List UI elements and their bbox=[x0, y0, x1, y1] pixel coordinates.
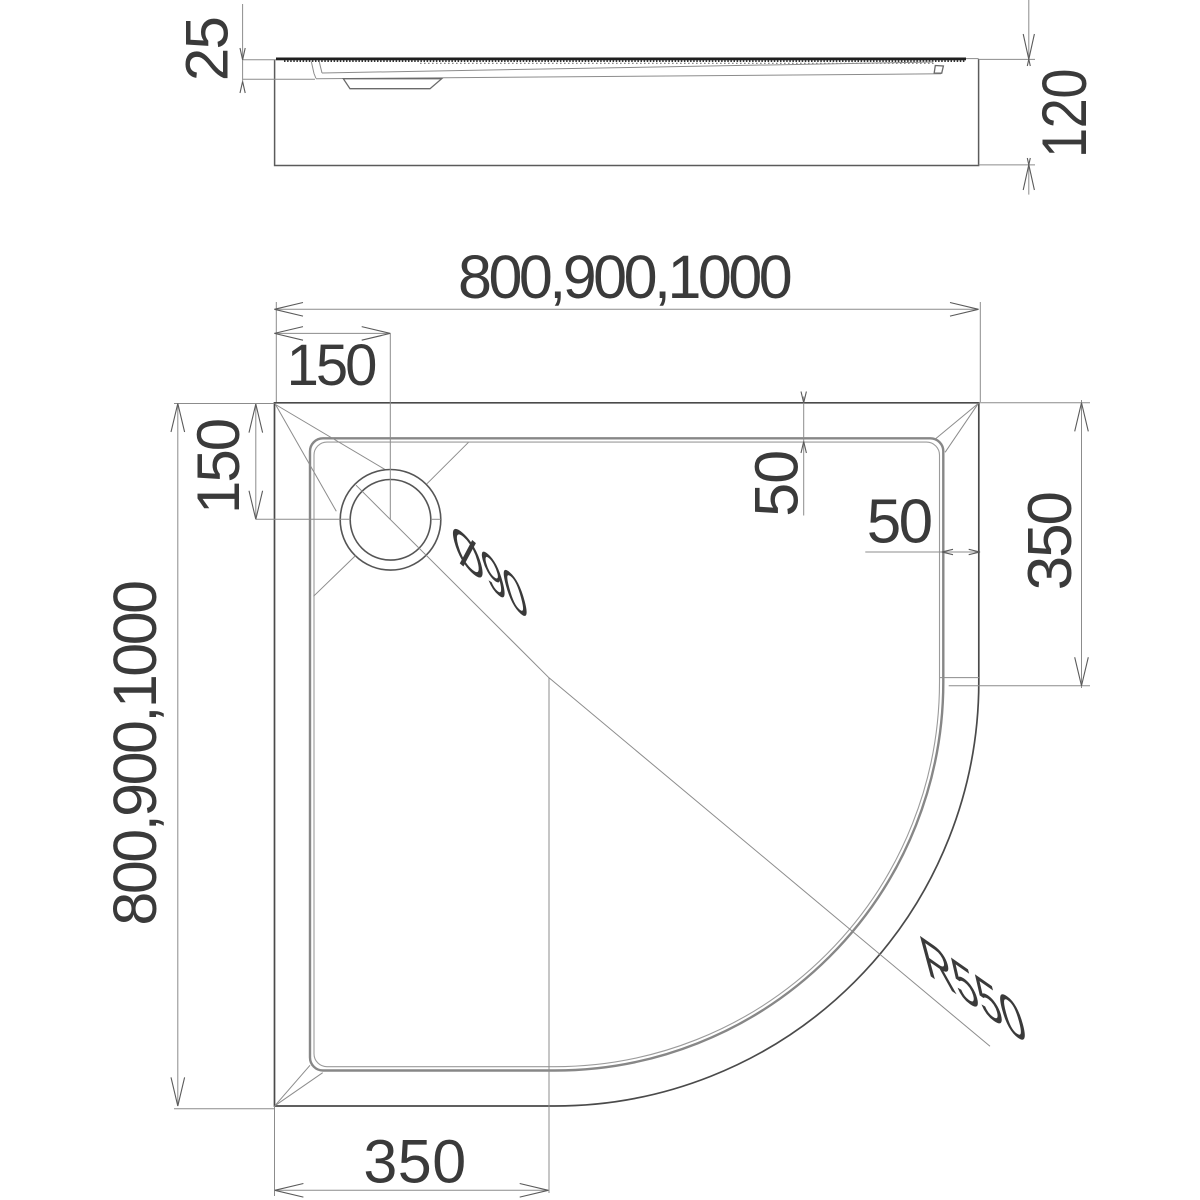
svg-text:25: 25 bbox=[174, 18, 241, 81]
svg-text:150: 150 bbox=[287, 333, 376, 398]
svg-text:350: 350 bbox=[363, 1128, 466, 1196]
svg-text:800,900,1000: 800,900,1000 bbox=[458, 243, 791, 311]
svg-text:350: 350 bbox=[1016, 492, 1085, 590]
svg-text:120: 120 bbox=[1030, 69, 1100, 158]
svg-text:150: 150 bbox=[185, 419, 252, 514]
svg-text:50: 50 bbox=[742, 451, 810, 517]
svg-text:800,900,1000: 800,900,1000 bbox=[101, 582, 169, 926]
svg-text:50: 50 bbox=[867, 488, 932, 557]
